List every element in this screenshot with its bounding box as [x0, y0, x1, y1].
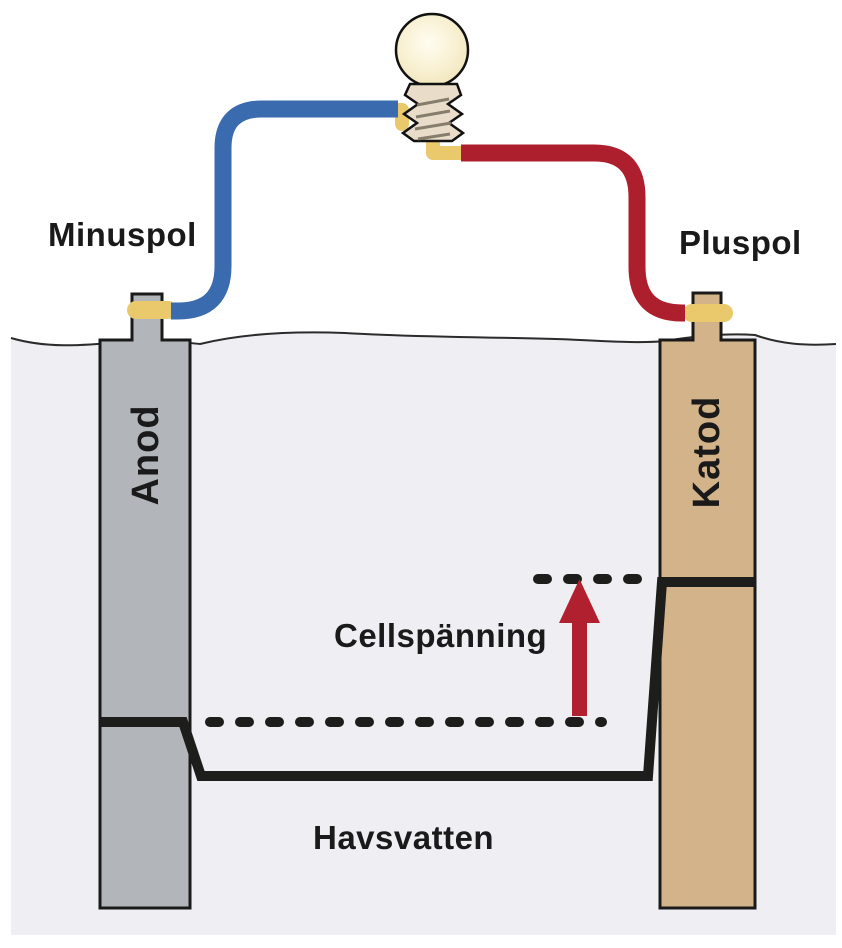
- anode-label: Anod: [127, 404, 165, 505]
- galvanic-cell-diagram: Minuspol Pluspol Anod Katod Cellspänning…: [0, 0, 842, 948]
- anode-electrode: [100, 294, 190, 908]
- cell-voltage-label: Cellspänning: [334, 619, 547, 652]
- bulb-glass: [396, 14, 468, 86]
- cathode-label: Katod: [688, 396, 726, 509]
- seawater-label: Havsvatten: [313, 821, 494, 854]
- plus-pole-label: Pluspol: [679, 226, 802, 259]
- negative-wire: [171, 109, 398, 311]
- cathode-electrode: [660, 293, 755, 908]
- minus-pole-label: Minuspol: [48, 218, 197, 251]
- positive-wire: [461, 153, 685, 313]
